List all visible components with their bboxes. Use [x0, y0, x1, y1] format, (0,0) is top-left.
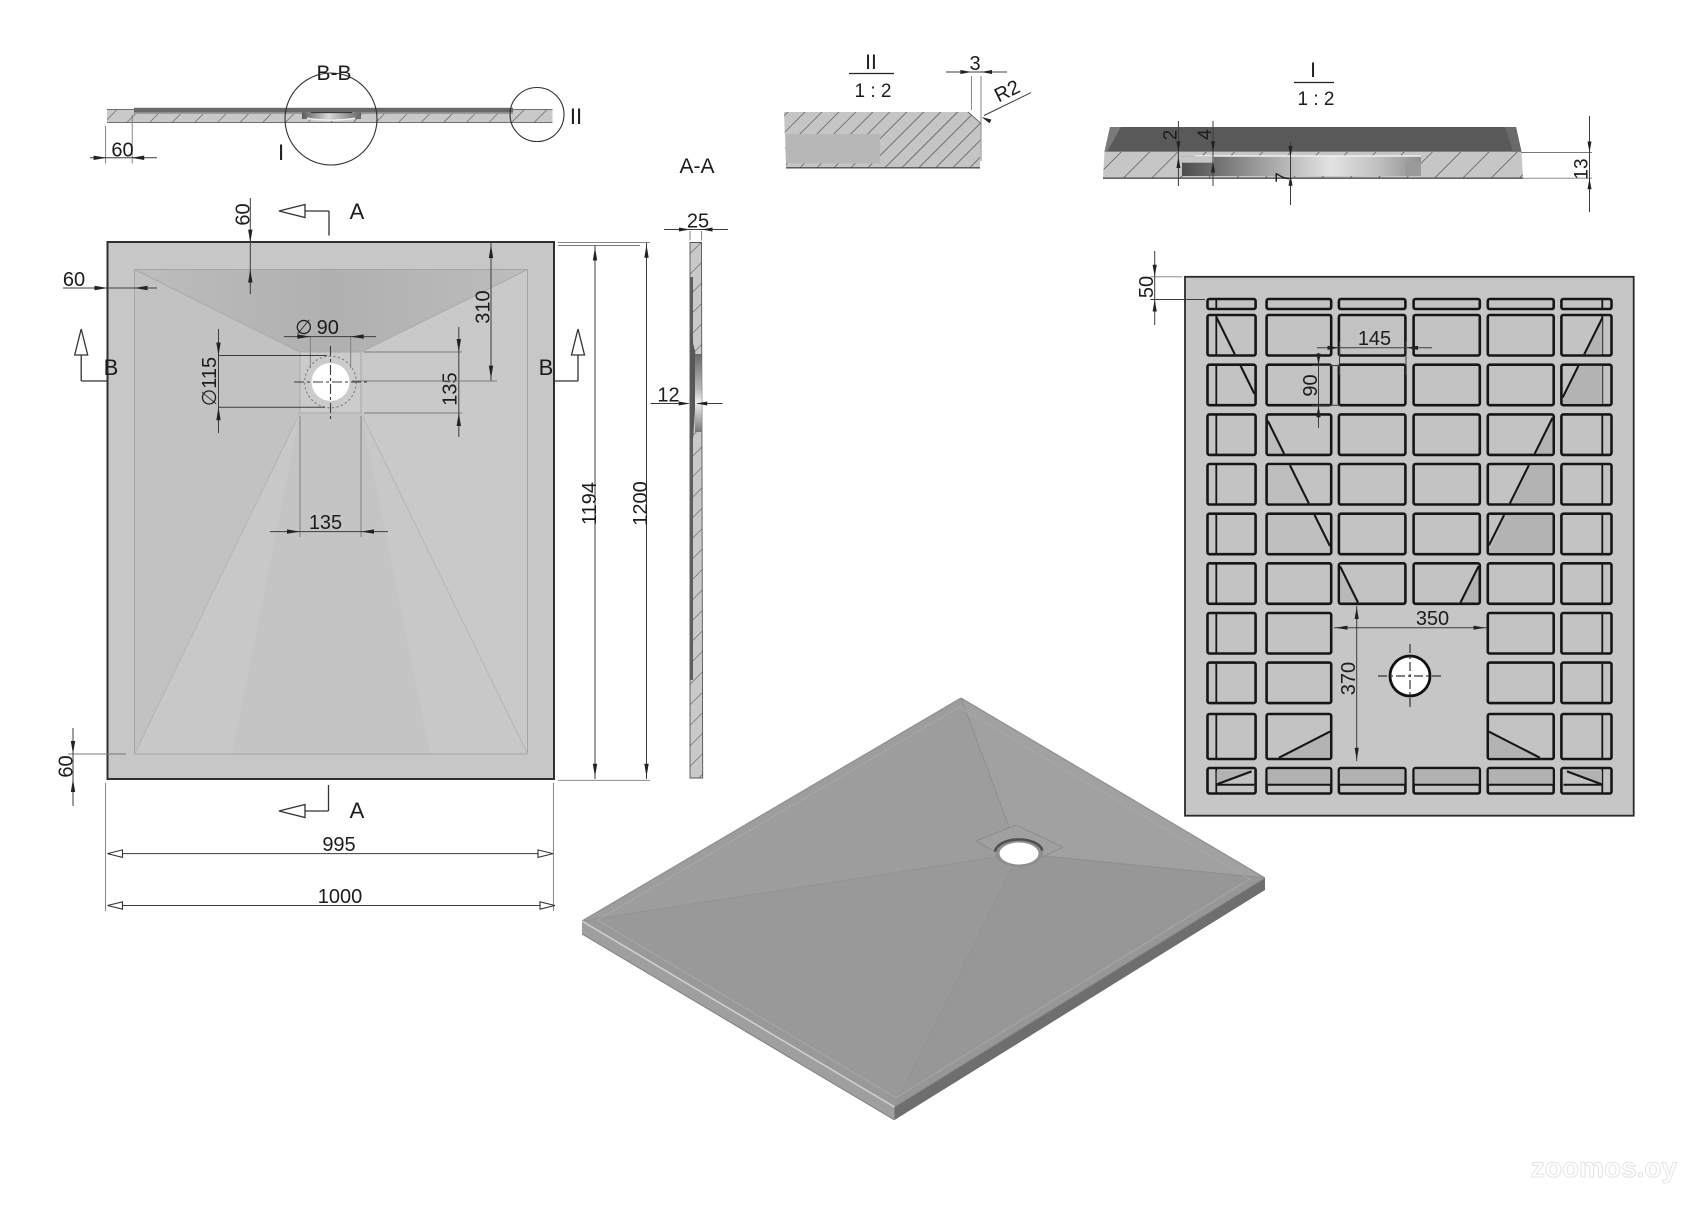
svg-text:135: 135 — [440, 372, 462, 405]
svg-text:II: II — [570, 104, 582, 129]
svg-text:∅115: ∅115 — [199, 357, 221, 406]
svg-text:1 : 2: 1 : 2 — [855, 81, 892, 102]
svg-text:1000: 1000 — [318, 886, 363, 908]
svg-text:1194: 1194 — [579, 482, 601, 525]
svg-text:310: 310 — [473, 290, 495, 323]
svg-text:60: 60 — [63, 269, 85, 291]
svg-text:60: 60 — [233, 203, 255, 225]
svg-text:60: 60 — [111, 140, 133, 162]
svg-text:350: 350 — [1416, 608, 1449, 630]
svg-text:370: 370 — [1338, 662, 1360, 695]
svg-text:12: 12 — [657, 385, 679, 407]
svg-text:I: I — [278, 140, 284, 165]
svg-text:3: 3 — [969, 53, 980, 75]
svg-text:995: 995 — [322, 834, 355, 856]
svg-text:∅ 90: ∅ 90 — [295, 317, 339, 339]
svg-text:B: B — [104, 355, 119, 380]
svg-text:B: B — [539, 355, 554, 380]
svg-text:A: A — [350, 798, 365, 823]
svg-text:50: 50 — [1136, 276, 1158, 298]
svg-text:60: 60 — [56, 755, 78, 777]
svg-text:II: II — [865, 51, 877, 74]
svg-text:zoomos.oy: zoomos.oy — [1531, 1152, 1678, 1183]
svg-text:I: I — [1310, 59, 1316, 82]
svg-text:1200: 1200 — [630, 481, 652, 526]
svg-text:90: 90 — [1300, 374, 1322, 396]
svg-text:2: 2 — [1161, 130, 1182, 141]
svg-text:25: 25 — [687, 211, 709, 233]
svg-text:13: 13 — [1572, 158, 1593, 179]
svg-text:7: 7 — [1273, 172, 1294, 183]
svg-text:4: 4 — [1195, 129, 1216, 140]
svg-text:A-A: A-A — [679, 155, 714, 178]
svg-text:135: 135 — [309, 512, 342, 534]
svg-text:1 : 2: 1 : 2 — [1298, 89, 1335, 110]
svg-text:145: 145 — [1358, 328, 1391, 350]
svg-text:A: A — [350, 199, 365, 224]
